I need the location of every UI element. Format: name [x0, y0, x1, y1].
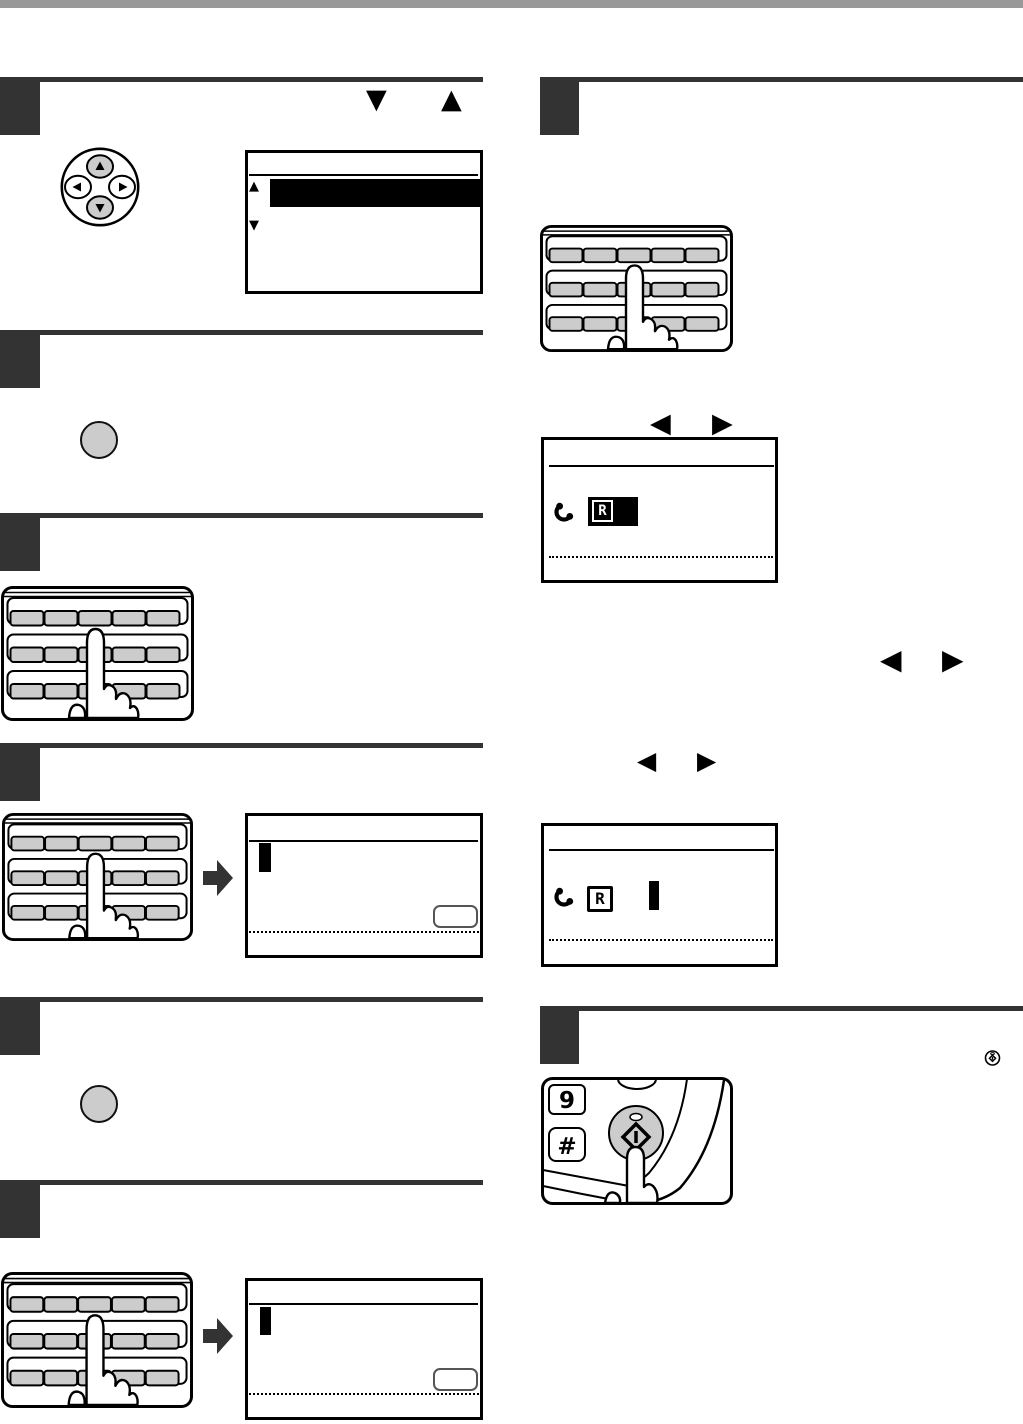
step-rule [0, 743, 483, 748]
step-2-marker [0, 330, 40, 388]
one-touch-key [10, 1297, 43, 1312]
one-touch-key [686, 283, 719, 297]
one-touch-key [44, 1371, 77, 1386]
right-triangle-icon: ▶ [942, 646, 964, 674]
one-touch-key [618, 249, 651, 263]
scroll-up-icon: ▲ [249, 180, 259, 193]
step-7-marker [540, 77, 579, 135]
r-key-symbol: R [587, 886, 613, 912]
one-touch-key [550, 283, 583, 297]
one-touch-key [11, 837, 44, 851]
step-rule [0, 77, 483, 82]
one-touch-key [11, 684, 44, 699]
right-triangle-icon: ▶ [712, 410, 733, 437]
one-touch-key [11, 871, 44, 885]
lcd-title-line [249, 174, 478, 176]
lcd-display-menu: ▲ ▼ [245, 150, 483, 294]
one-touch-key-panel-drawing [540, 225, 733, 352]
lcd-title-line [249, 840, 478, 842]
one-touch-panel-step-6 [1, 1272, 193, 1408]
step-4-marker [0, 743, 40, 801]
start-key-panel-drawing: 9 # [541, 1077, 733, 1205]
lcd-soft-button [433, 905, 478, 928]
hash-key-label: # [557, 1134, 576, 1160]
one-touch-key [147, 648, 180, 663]
one-touch-key-panel-drawing [2, 813, 193, 941]
one-touch-key [686, 249, 719, 263]
down-triangle-icon: ▼ [366, 86, 387, 113]
step-1-marker [0, 77, 40, 135]
r-key-glyph: R [592, 500, 613, 522]
one-touch-key [10, 1334, 43, 1349]
one-touch-key [146, 837, 179, 851]
scroll-down-icon: ▼ [249, 219, 259, 232]
selected-menu-row [270, 179, 480, 207]
arrow-keypad-drawing [60, 147, 140, 227]
lcd-title-line [549, 465, 774, 467]
one-touch-key [550, 249, 583, 263]
phone-handset-icon [553, 501, 575, 523]
key-row-1 [8, 598, 188, 626]
one-touch-key [652, 283, 685, 297]
one-touch-key [146, 1371, 179, 1386]
round-key-drawing [80, 421, 118, 459]
step-rule [0, 997, 483, 1002]
up-triangle-icon: ▲ [441, 86, 462, 113]
one-touch-key [147, 611, 180, 626]
lcd-title-line [549, 849, 774, 851]
step-rule [0, 1180, 483, 1185]
one-touch-key [45, 837, 78, 851]
one-touch-key [45, 648, 78, 663]
one-touch-key [11, 906, 44, 920]
lcd-soft-button [433, 1368, 478, 1391]
text-cursor [649, 881, 659, 910]
key-row-1 [547, 236, 727, 262]
one-touch-key [146, 1297, 179, 1312]
page-top-bar [0, 0, 1023, 8]
one-touch-key [652, 249, 685, 263]
one-touch-key [113, 611, 146, 626]
one-touch-key [146, 906, 179, 920]
one-touch-key [686, 317, 719, 331]
one-touch-key-panel-drawing [1, 1272, 193, 1408]
left-triangle-icon: ◀ [880, 646, 902, 674]
one-touch-key [113, 648, 146, 663]
lcd-dotted-line [549, 939, 773, 941]
right-arrow-icon [203, 1317, 233, 1355]
one-touch-key [44, 1297, 77, 1312]
nine-key-label: 9 [559, 1088, 575, 1114]
one-touch-key [78, 1297, 111, 1312]
one-touch-panel-step-3 [1, 586, 194, 721]
one-touch-key [147, 684, 180, 699]
key-row-1 [7, 1284, 186, 1312]
key-row-1 [8, 824, 186, 850]
one-touch-key [146, 1334, 179, 1349]
lcd-dotted-line [249, 931, 479, 933]
one-touch-key [79, 611, 112, 626]
right-arrow-icon [203, 859, 233, 897]
one-touch-key [584, 249, 617, 263]
lcd-dotted-line [249, 1393, 479, 1395]
one-touch-key [584, 283, 617, 297]
one-touch-key [584, 317, 617, 331]
lcd-title-line [249, 1303, 478, 1305]
lcd-dotted-line [549, 556, 773, 558]
one-touch-key [11, 611, 44, 626]
one-touch-key [45, 611, 78, 626]
right-triangle-icon: ▶ [697, 748, 716, 773]
fax-manual-page: ▼ ▲ ▲ ▼ [0, 0, 1023, 1424]
one-touch-key [44, 1334, 77, 1349]
one-touch-key [45, 906, 78, 920]
lcd-display-dial-selected: R [541, 437, 778, 583]
one-touch-key [112, 1334, 145, 1349]
step-rule [540, 77, 1023, 82]
start-key-icon [984, 1049, 1001, 1066]
step-8-marker [540, 1006, 579, 1064]
start-led-indicator [630, 1114, 642, 1121]
one-touch-key [79, 837, 112, 851]
one-touch-key [10, 1371, 43, 1386]
one-touch-panel-step-4 [2, 813, 193, 941]
one-touch-key [550, 317, 583, 331]
lcd-display-entry [245, 1278, 483, 1420]
one-touch-key [45, 684, 78, 699]
one-touch-key [112, 837, 145, 851]
one-touch-key [112, 871, 145, 885]
one-touch-key [146, 871, 179, 885]
one-touch-key [112, 1297, 145, 1312]
one-touch-key-panel-drawing [1, 586, 194, 721]
one-touch-panel-step-7 [540, 225, 733, 352]
r-key-symbol-selected: R [588, 497, 638, 526]
step-rule [0, 330, 483, 335]
lcd-display-dial-entry: R [541, 823, 778, 967]
one-touch-key [45, 871, 78, 885]
lcd-display-entry [245, 813, 483, 958]
step-rule [540, 1006, 1023, 1011]
step-5-marker [0, 997, 40, 1055]
round-key-drawing [80, 1085, 118, 1123]
left-triangle-icon: ◀ [637, 748, 656, 773]
left-triangle-icon: ◀ [650, 410, 671, 437]
phone-handset-icon [553, 886, 575, 908]
step-3-marker [0, 513, 40, 571]
step-rule [0, 513, 483, 518]
one-touch-key [11, 648, 44, 663]
text-cursor [259, 843, 271, 872]
step-6-marker [0, 1180, 40, 1238]
text-cursor [260, 1307, 271, 1335]
